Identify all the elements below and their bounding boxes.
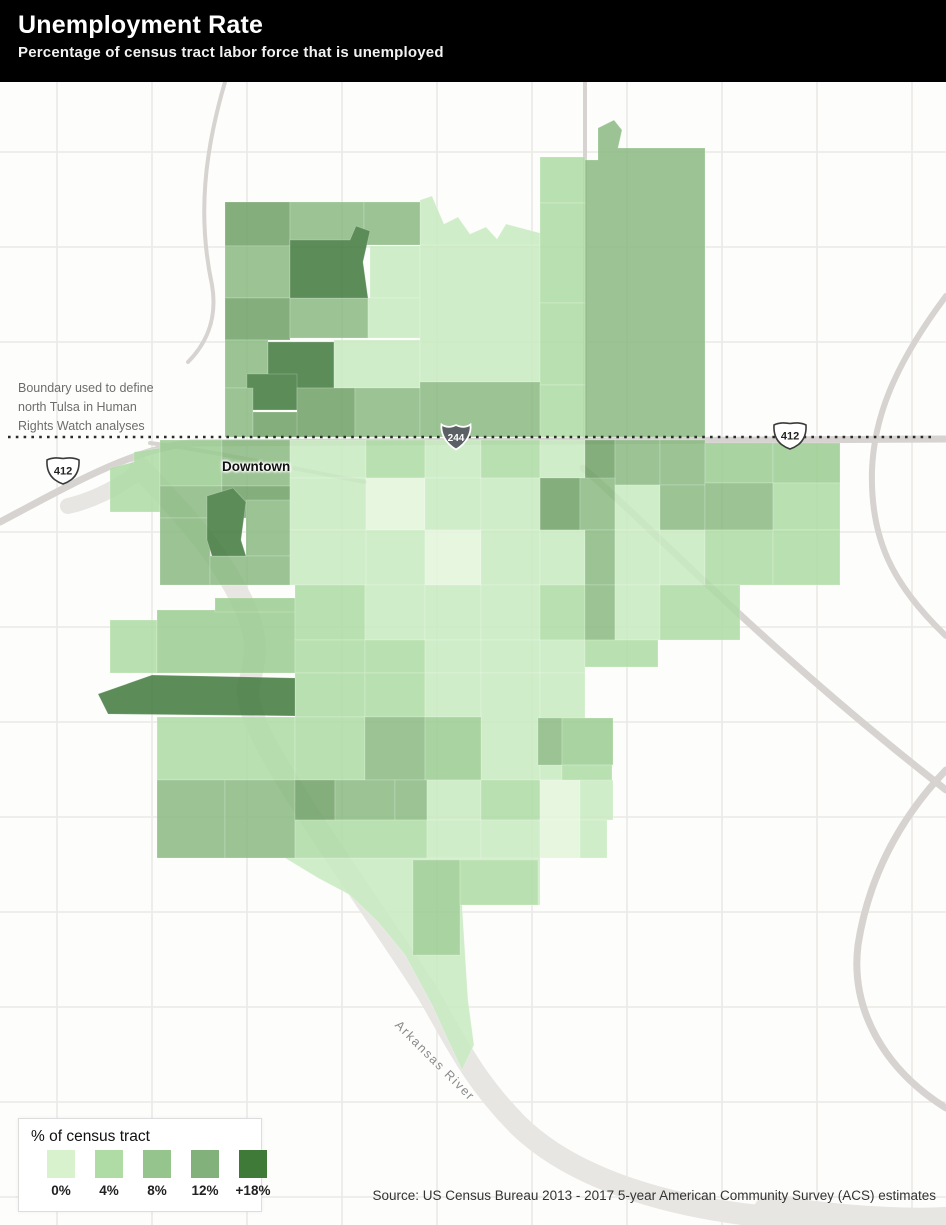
tract xyxy=(365,585,425,640)
legend-swatch xyxy=(95,1150,123,1178)
tract xyxy=(295,585,365,640)
tract xyxy=(540,478,580,530)
page: Unemployment Rate Percentage of census t… xyxy=(0,0,946,1225)
tract xyxy=(297,388,355,437)
legend-swatch xyxy=(239,1150,267,1178)
tract xyxy=(773,483,840,530)
tract xyxy=(580,478,615,530)
map-canvas: 412244412 xyxy=(0,82,946,1225)
tract xyxy=(110,620,157,673)
tract xyxy=(540,585,585,640)
tract xyxy=(290,298,368,338)
tract xyxy=(660,440,705,485)
tract xyxy=(540,303,585,385)
tract xyxy=(615,440,660,485)
tract xyxy=(705,530,773,585)
tract xyxy=(157,780,225,858)
boundary-annotation: Boundary used to define north Tulsa in H… xyxy=(18,379,188,436)
tract xyxy=(335,780,395,820)
tract xyxy=(370,246,420,298)
legend-swatch-label: 8% xyxy=(133,1183,181,1198)
tract xyxy=(157,717,295,780)
tract xyxy=(481,820,540,858)
tract xyxy=(615,585,660,640)
tract xyxy=(585,585,615,640)
tract xyxy=(225,202,290,246)
tract xyxy=(540,640,585,673)
tract xyxy=(585,640,658,667)
tract xyxy=(425,717,481,780)
tract xyxy=(481,440,540,478)
tract xyxy=(481,780,540,820)
annotation-line: north Tulsa in Human xyxy=(18,398,188,417)
tract xyxy=(481,530,540,585)
tract xyxy=(615,530,660,585)
annotation-line: Rights Watch analyses xyxy=(18,417,188,436)
tract xyxy=(540,780,580,820)
downtown-label: Downtown xyxy=(222,459,290,474)
tract xyxy=(215,598,295,612)
legend-swatch-label: 0% xyxy=(37,1183,85,1198)
tract xyxy=(540,820,580,858)
tract xyxy=(540,203,585,303)
tract xyxy=(290,478,366,530)
tract xyxy=(773,530,840,585)
tract xyxy=(425,530,481,585)
tract xyxy=(425,673,481,717)
tract xyxy=(425,478,481,530)
header: Unemployment Rate Percentage of census t… xyxy=(0,0,946,82)
tract xyxy=(427,780,481,820)
tract xyxy=(295,820,427,858)
tract xyxy=(420,382,540,437)
legend-swatch-label: +18% xyxy=(229,1183,277,1198)
tract xyxy=(538,718,562,765)
tract xyxy=(157,610,295,673)
legend: % of census tract 0%4%8%12%+18% xyxy=(18,1118,262,1212)
svg-text:412: 412 xyxy=(54,466,72,478)
tract xyxy=(413,860,460,955)
tract xyxy=(660,485,705,530)
tract xyxy=(425,585,481,640)
tract xyxy=(290,440,366,478)
tract xyxy=(660,530,705,585)
tract xyxy=(295,717,365,780)
source-note: Source: US Census Bureau 2013 - 2017 5-y… xyxy=(373,1188,937,1203)
tract xyxy=(540,157,585,203)
tract xyxy=(246,500,290,556)
tract xyxy=(225,388,253,437)
legend-swatches: 0%4%8%12%+18% xyxy=(19,1149,263,1211)
tract xyxy=(540,530,585,585)
tract xyxy=(395,780,427,820)
tract xyxy=(705,443,773,483)
svg-text:244: 244 xyxy=(448,433,465,444)
tract xyxy=(355,388,420,437)
tract xyxy=(225,298,290,340)
tract xyxy=(660,585,740,640)
tract xyxy=(295,780,335,820)
tract xyxy=(705,483,773,530)
tract xyxy=(225,246,290,298)
tract xyxy=(295,673,365,717)
svg-text:412: 412 xyxy=(781,431,799,443)
tract xyxy=(253,412,300,437)
tract xyxy=(481,673,540,780)
tract xyxy=(427,820,481,858)
tract xyxy=(481,640,540,673)
tract xyxy=(540,385,585,437)
tract xyxy=(364,202,420,245)
legend-swatch xyxy=(191,1150,219,1178)
tract xyxy=(585,530,615,585)
tract xyxy=(368,298,420,338)
legend-swatch xyxy=(143,1150,171,1178)
tract xyxy=(365,673,425,717)
tract xyxy=(562,718,613,765)
tract xyxy=(365,640,425,673)
legend-swatch-label: 12% xyxy=(181,1183,229,1198)
annotation-line: Boundary used to define xyxy=(18,379,188,398)
tract xyxy=(295,640,365,673)
tract xyxy=(366,478,425,530)
tract xyxy=(160,518,210,585)
tract xyxy=(481,478,540,530)
tract xyxy=(773,443,840,483)
tract xyxy=(540,440,585,478)
legend-swatch xyxy=(47,1150,75,1178)
tract xyxy=(247,374,297,410)
tract xyxy=(225,780,295,858)
tract xyxy=(460,860,538,905)
tract xyxy=(210,556,290,585)
tract xyxy=(366,530,425,585)
tract xyxy=(580,820,607,858)
page-subtitle: Percentage of census tract labor force t… xyxy=(18,44,928,61)
tract xyxy=(160,440,222,486)
tract xyxy=(580,780,613,820)
tract xyxy=(481,585,540,640)
legend-title: % of census tract xyxy=(31,1128,261,1146)
tract xyxy=(207,488,246,556)
tract xyxy=(365,717,425,780)
tract xyxy=(615,485,660,530)
legend-swatch-label: 4% xyxy=(85,1183,133,1198)
tract xyxy=(420,245,540,382)
tract xyxy=(425,640,481,673)
tract xyxy=(334,340,420,388)
tract xyxy=(585,120,705,437)
tract xyxy=(290,530,366,585)
tract xyxy=(366,440,425,478)
page-title: Unemployment Rate xyxy=(18,11,928,39)
